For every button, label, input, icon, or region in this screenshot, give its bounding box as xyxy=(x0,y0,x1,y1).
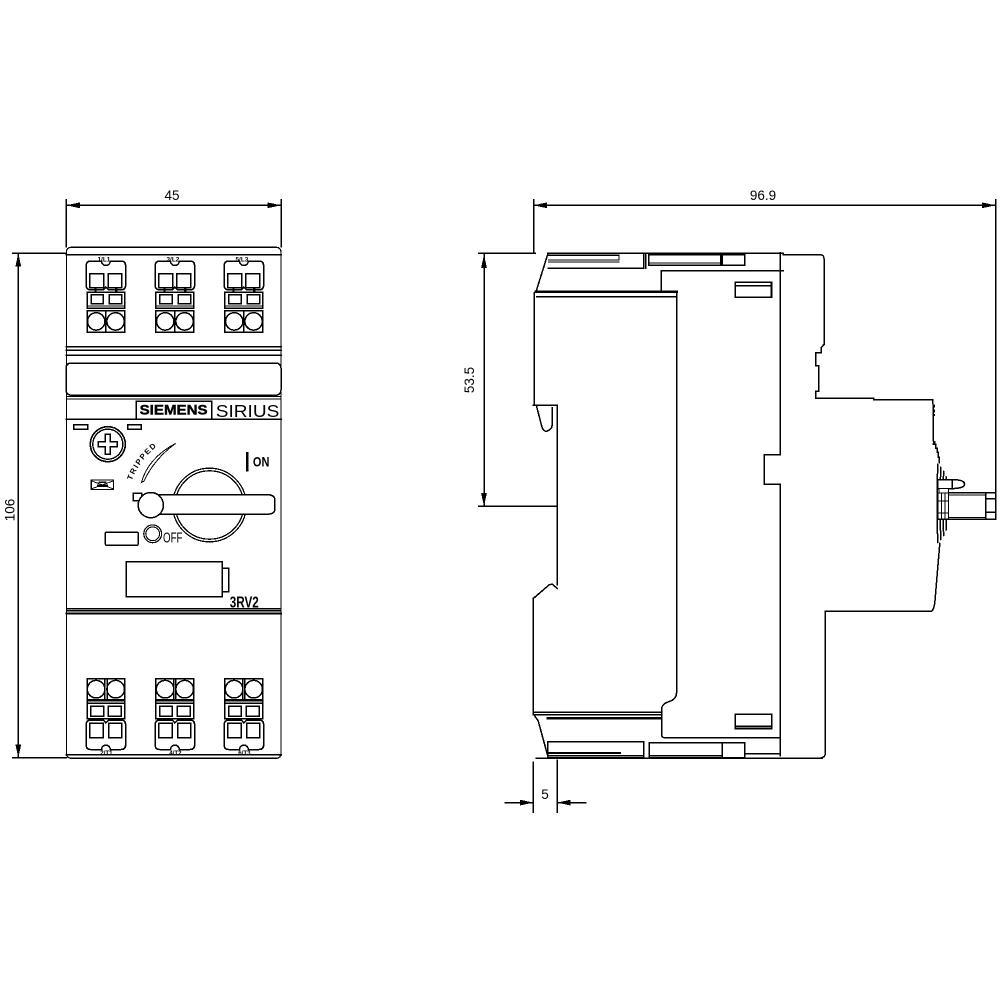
svg-text:SIEMENS: SIEMENS xyxy=(140,402,208,418)
svg-text:TRIPPED: TRIPPED xyxy=(125,441,158,482)
svg-text:6/T3: 6/T3 xyxy=(238,750,251,757)
svg-text:4/T2: 4/T2 xyxy=(169,750,182,757)
svg-text:3/L2: 3/L2 xyxy=(167,257,180,264)
svg-text:96.9: 96.9 xyxy=(750,188,776,203)
svg-text:5/L3: 5/L3 xyxy=(236,257,249,264)
svg-text:SIRIUS: SIRIUS xyxy=(216,401,279,421)
svg-text:OFF: OFF xyxy=(163,530,183,546)
svg-text:ON: ON xyxy=(253,454,270,470)
svg-text:1/L1: 1/L1 xyxy=(98,257,111,264)
svg-text:5: 5 xyxy=(541,787,549,802)
svg-text:45: 45 xyxy=(164,188,179,203)
svg-text:53.5: 53.5 xyxy=(462,367,477,393)
svg-text:2/T1: 2/T1 xyxy=(100,750,113,757)
svg-text:106: 106 xyxy=(3,499,18,522)
